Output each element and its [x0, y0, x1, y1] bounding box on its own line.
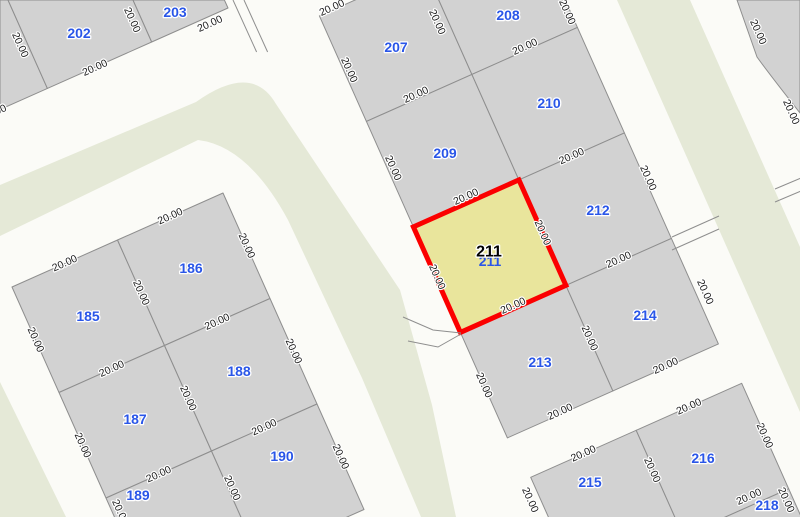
parcel-185-number: 185 [76, 308, 100, 324]
parcel-210-number: 210 [537, 95, 561, 111]
parcel-207-number: 207 [384, 39, 408, 55]
parcel-187-number: 187 [123, 411, 147, 427]
parcel-186-number: 186 [179, 260, 203, 276]
parcel-215-number: 215 [578, 474, 602, 490]
parcel-202-number: 202 [67, 25, 91, 41]
parcel-209-number: 209 [433, 145, 457, 161]
parcel-190-number: 190 [270, 448, 294, 464]
parcel-214-number: 214 [633, 307, 657, 323]
parcel-188-number: 188 [227, 363, 251, 379]
map-canvas[interactable]: 20.0020.0020.0020.0020.0020.0020.0020.00… [0, 0, 800, 517]
parcel-map-svg[interactable]: 20.0020.0020.0020.0020.0020.0020.0020.00… [0, 0, 800, 517]
parcel-216-number: 216 [691, 450, 715, 466]
parcel-213-number: 213 [528, 354, 552, 370]
parcel-212-number: 212 [586, 202, 610, 218]
parcel-211-number-selected: 211 [476, 244, 502, 261]
parcel-208-number: 208 [496, 7, 520, 23]
parcel-189-number: 189 [126, 487, 150, 503]
parcel-218-number: 218 [755, 497, 779, 513]
parcel-203-number: 203 [163, 4, 187, 20]
